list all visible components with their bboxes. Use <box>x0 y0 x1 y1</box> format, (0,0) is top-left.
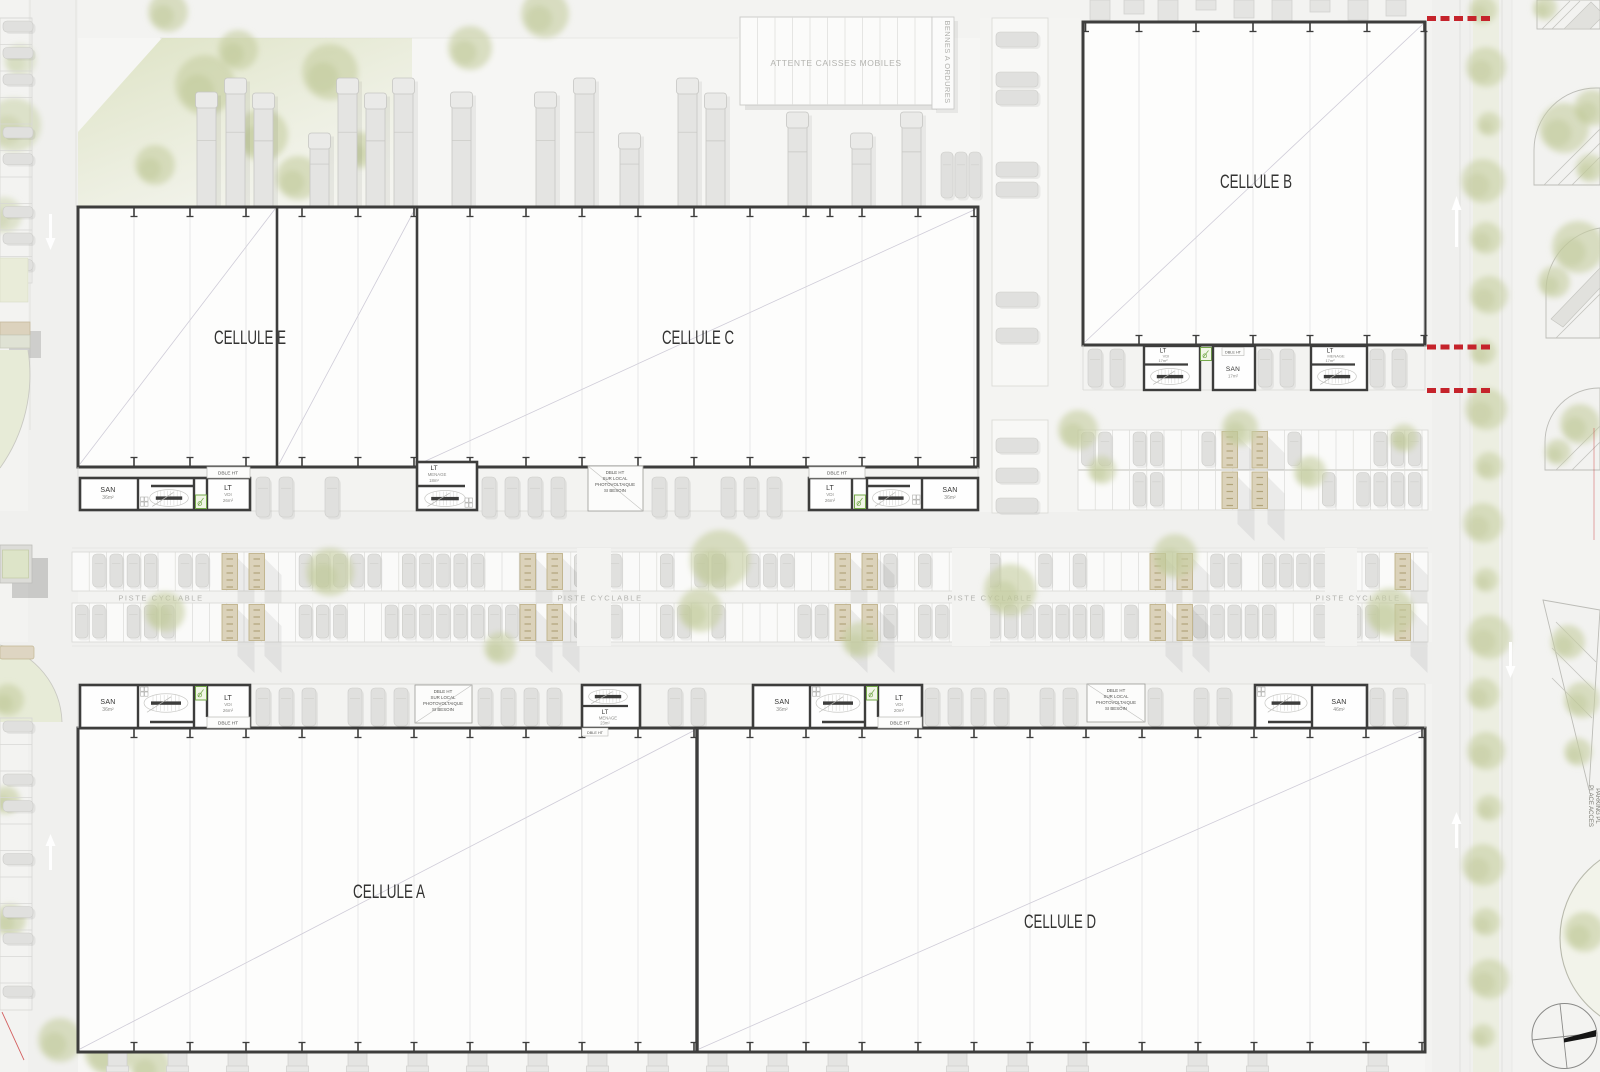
svg-text:17m²: 17m² <box>1228 374 1239 379</box>
svg-text:36m²: 36m² <box>102 495 114 501</box>
svg-text:CELLULE B: CELLULE B <box>1220 172 1292 193</box>
svg-text:PHOTOVOLTAIQUE: PHOTOVOLTAIQUE <box>595 482 635 487</box>
svg-text:DBLE HT: DBLE HT <box>218 471 238 477</box>
svg-text:PARKING PL: PARKING PL <box>1594 788 1600 824</box>
svg-text:SAN: SAN <box>100 699 115 706</box>
svg-text:SI BESOIN: SI BESOIN <box>1105 706 1127 711</box>
svg-text:VDI: VDI <box>224 702 232 707</box>
svg-text:36m²: 36m² <box>944 495 956 501</box>
svg-text:SUR LOCAL: SUR LOCAL <box>603 476 628 481</box>
svg-text:VDI: VDI <box>826 492 834 497</box>
svg-text:SAN: SAN <box>774 699 789 706</box>
svg-text:SI BESOIN: SI BESOIN <box>604 488 626 493</box>
svg-text:PHOTOVOLTAIQUE: PHOTOVOLTAIQUE <box>423 701 463 706</box>
svg-text:CELLULE C: CELLULE C <box>662 328 734 349</box>
svg-text:23m²: 23m² <box>600 721 610 726</box>
svg-text:DBLE HT: DBLE HT <box>434 689 453 694</box>
svg-text:DBLE HT: DBLE HT <box>1225 351 1242 355</box>
svg-text:36m²: 36m² <box>102 707 114 713</box>
svg-text:LT: LT <box>430 465 437 472</box>
svg-text:LT: LT <box>895 695 903 702</box>
svg-text:20m²: 20m² <box>894 708 905 713</box>
svg-text:DBLE HT: DBLE HT <box>587 731 604 735</box>
svg-text:LT: LT <box>224 485 232 492</box>
svg-text:DBLE HT: DBLE HT <box>1107 688 1126 693</box>
svg-text:17m²: 17m² <box>1325 358 1335 363</box>
svg-text:ATTENTE CAISSES MOBILES: ATTENTE CAISSES MOBILES <box>770 58 901 68</box>
svg-text:DBLE HT: DBLE HT <box>827 471 847 477</box>
svg-text:DBLE HT: DBLE HT <box>606 470 625 475</box>
svg-text:VDI: VDI <box>895 702 903 707</box>
svg-text:26m²: 26m² <box>223 498 234 503</box>
svg-text:LT: LT <box>826 485 834 492</box>
svg-text:46m²: 46m² <box>1333 707 1345 713</box>
svg-text:CELLULE A: CELLULE A <box>353 882 425 903</box>
svg-text:SI BESOIN: SI BESOIN <box>432 707 454 712</box>
svg-text:PHOTOVOLTAIQUE: PHOTOVOLTAIQUE <box>1096 700 1136 705</box>
svg-text:SAN: SAN <box>1226 366 1240 373</box>
svg-text:CELLULE D: CELLULE D <box>1024 912 1096 933</box>
svg-text:PLACE ACCES: PLACE ACCES <box>1587 785 1593 827</box>
svg-text:36m²: 36m² <box>776 707 788 713</box>
svg-text:17m²: 17m² <box>1158 358 1168 363</box>
svg-text:CELLULE E: CELLULE E <box>214 328 286 349</box>
svg-text:26m²: 26m² <box>825 498 836 503</box>
svg-text:18m²: 18m² <box>429 478 439 483</box>
svg-text:SUR LOCAL: SUR LOCAL <box>1104 694 1129 699</box>
svg-text:PISTE CYCLABLE: PISTE CYCLABLE <box>557 594 642 603</box>
svg-text:SAN: SAN <box>942 487 957 494</box>
svg-text:VDI: VDI <box>224 492 232 497</box>
svg-text:SAN: SAN <box>1331 699 1346 706</box>
svg-text:SUR LOCAL: SUR LOCAL <box>431 695 456 700</box>
svg-text:BENNES A ORDURES: BENNES A ORDURES <box>943 20 952 103</box>
svg-text:MENAGE: MENAGE <box>428 472 447 477</box>
svg-text:SAN: SAN <box>100 487 115 494</box>
svg-text:26m²: 26m² <box>223 708 234 713</box>
svg-text:DBLE HT: DBLE HT <box>890 721 910 727</box>
svg-text:LT: LT <box>224 695 232 702</box>
svg-text:DBLE HT: DBLE HT <box>218 721 238 727</box>
